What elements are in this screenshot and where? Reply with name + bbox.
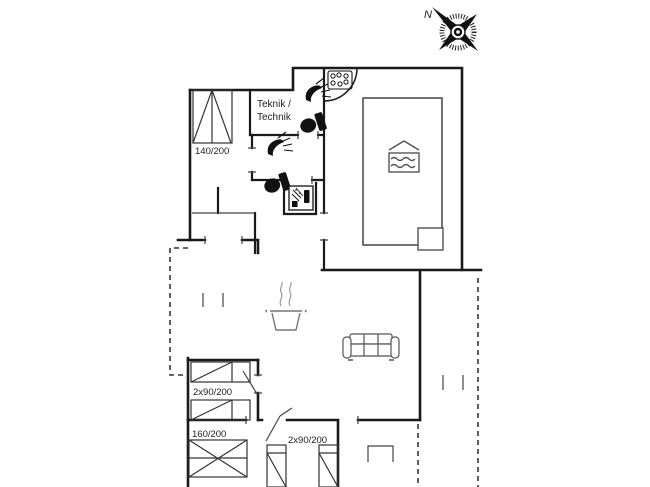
washbasin-icon (289, 186, 313, 210)
pool-icon-wave1 (391, 158, 415, 161)
floor-plan: N Teknik / Technik 140/200 2x90/200 160/… (0, 0, 650, 487)
exterior-walls (178, 68, 481, 487)
wall-terrace-top (178, 240, 258, 253)
pool-steps (418, 228, 443, 250)
bed-140x200 (193, 90, 232, 143)
terrace-door-marks (203, 293, 463, 462)
floor-plan-drawing: N Teknik / Technik 140/200 2x90/200 160/… (0, 0, 650, 487)
terrace-east-marks (443, 375, 463, 390)
bed-single-left-a (191, 362, 250, 382)
bed-160x200 (189, 440, 247, 477)
sofa-icon (343, 334, 399, 360)
door-tick-pool (320, 213, 328, 240)
swimming-pool-icon (389, 141, 419, 172)
terrace-outlines (170, 248, 478, 487)
bed-single-left-b (191, 400, 250, 420)
terrace-west-outline (170, 248, 188, 375)
bathroom-lower (262, 132, 293, 197)
technik-label-line2: Technik (257, 112, 292, 123)
shower-icon (306, 78, 331, 102)
cooking-pot-icon (266, 282, 306, 330)
pool-room (324, 68, 443, 250)
terrace-step (368, 446, 393, 462)
pool-icon-roof (389, 141, 419, 150)
technik-label-line1: Teknik / (257, 99, 291, 110)
bed-2x90-bottom-label: 2x90/200 (288, 435, 327, 446)
pool-icon-wave2 (391, 165, 415, 168)
terrace-west-marks (203, 293, 223, 307)
bathroom-top (298, 78, 331, 137)
bed-2x90-left-label: 2x90/200 (193, 387, 232, 398)
bed-single-bottom-b (319, 445, 338, 487)
bed-single-bottom-a (267, 445, 286, 487)
whirlpool-jets-icon (328, 71, 352, 89)
compass-rose-icon (432, 7, 478, 51)
door-tick-terrace (205, 236, 242, 244)
pool-icon-basin (389, 153, 419, 172)
bed-140-label: 140/200 (195, 146, 229, 157)
door-tick-bath2 (286, 176, 312, 184)
toilet-icon (298, 112, 327, 137)
north-label: N (424, 9, 432, 21)
door-tick-hall (248, 148, 256, 172)
toilet-icon (262, 172, 291, 197)
bed-160-label: 160/200 (192, 429, 226, 440)
